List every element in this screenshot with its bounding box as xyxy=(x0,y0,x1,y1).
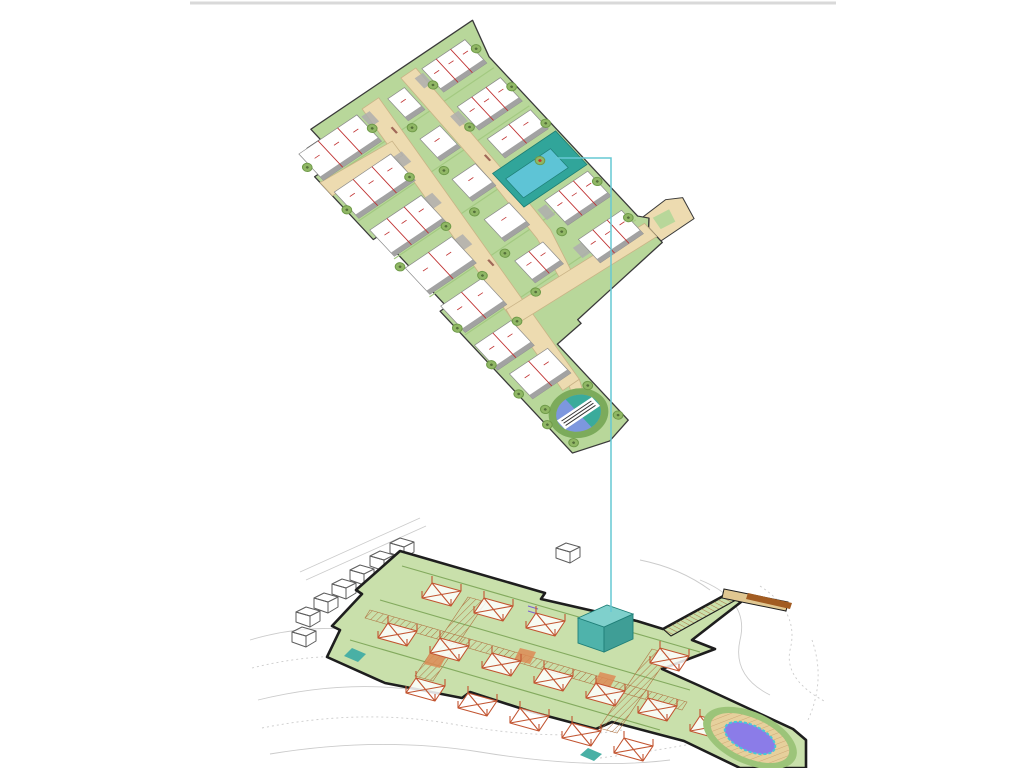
context-house xyxy=(296,607,320,627)
site-boundary xyxy=(286,20,766,461)
masterplan-figure xyxy=(0,0,1024,768)
contour-line xyxy=(808,640,818,720)
context-house xyxy=(556,543,580,563)
context-house xyxy=(292,627,316,647)
contour-line xyxy=(270,744,670,763)
architectural-drawing-canvas xyxy=(0,0,1024,768)
contour-line xyxy=(640,560,710,590)
tree xyxy=(393,261,407,273)
teal-edge-accent xyxy=(580,748,602,761)
wireframe-house xyxy=(614,731,653,761)
axonometric-view xyxy=(292,538,806,768)
site-plan-2d xyxy=(283,2,794,463)
